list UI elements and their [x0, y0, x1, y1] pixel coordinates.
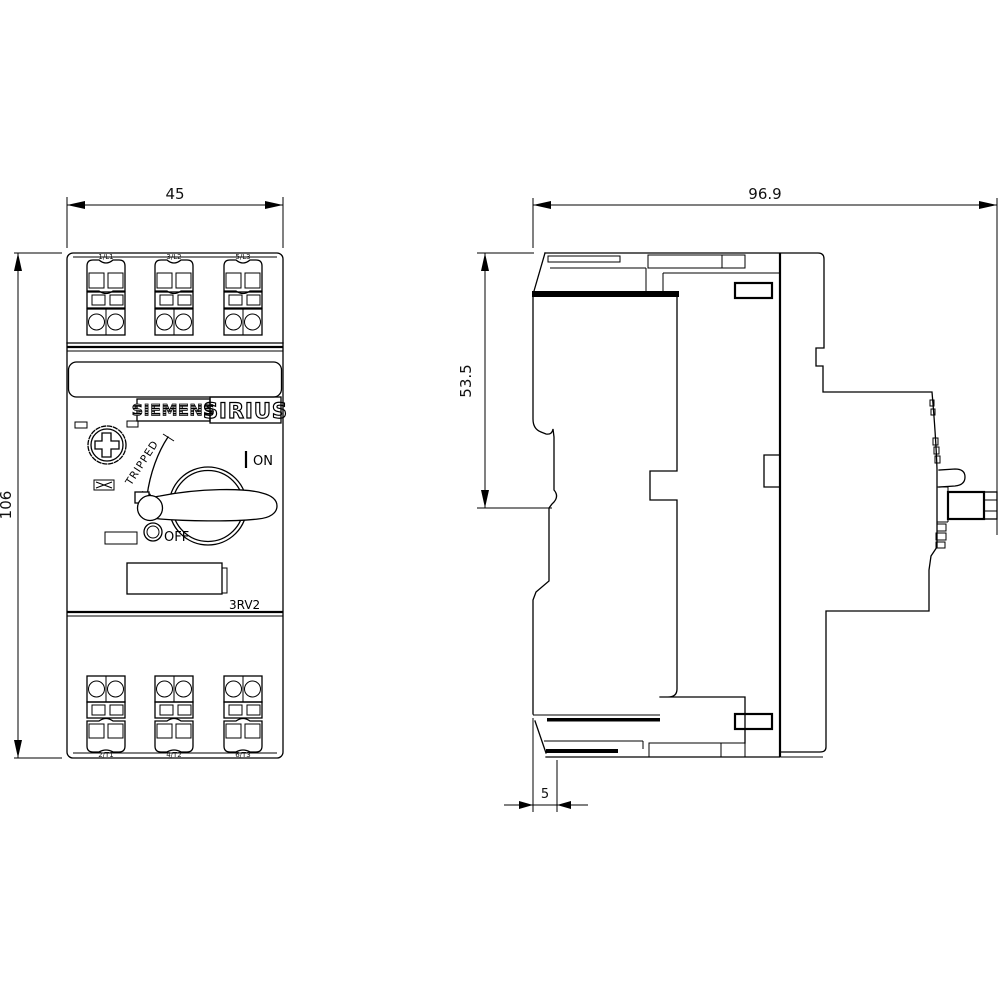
- front-view: 1/L1 3/L2 5/L3: [0, 185, 288, 759]
- panel-slot: [75, 422, 87, 428]
- front-height-dimension-label: 106: [0, 491, 15, 520]
- screw-terminal: [176, 681, 192, 697]
- adjustment-dial: [88, 426, 126, 464]
- vent-slot-bottom: [735, 714, 772, 729]
- off-marking: OFF: [144, 523, 189, 545]
- din-claw-profile: [533, 297, 557, 714]
- drawing-page: 1/L1 3/L2 5/L3: [0, 0, 1000, 1000]
- extension-lines: [533, 198, 997, 535]
- front-upper-divider: [67, 343, 283, 351]
- arrowhead: [519, 801, 533, 809]
- screw-terminal: [176, 314, 192, 330]
- arrowhead: [14, 253, 22, 271]
- side-depth-dimension: 96.9: [533, 185, 997, 535]
- screw-terminal: [89, 681, 105, 697]
- series-label: SIRIUS: [203, 399, 288, 423]
- screw-terminal: [108, 681, 124, 697]
- arrowhead: [481, 490, 489, 508]
- on-label: ON: [253, 454, 273, 469]
- side-knob-assembly: [930, 400, 997, 548]
- front-terminal-top-3: 5/L3: [224, 253, 262, 335]
- knob-end-cap: [984, 492, 997, 519]
- side-depth-dimension-label: 96.9: [748, 185, 781, 203]
- front-label-band: [69, 362, 282, 397]
- side-rail-offset-dimension: 5: [504, 718, 588, 812]
- side-bottom-details: [649, 714, 772, 757]
- divider-notch: [764, 455, 780, 487]
- panel-window: [105, 532, 137, 544]
- handle-lever: [145, 490, 277, 521]
- front-terminal-bottom-2: 4/T2: [155, 676, 193, 759]
- front-section-divider: [650, 297, 745, 743]
- terminal-label-6T3: 6/T3: [235, 751, 251, 759]
- model-label: 3RV2: [229, 598, 260, 612]
- terminal-label-2T1: 2/T1: [98, 751, 114, 759]
- arrowhead: [67, 201, 85, 209]
- screw-terminal: [226, 681, 242, 697]
- arrowhead: [557, 801, 571, 809]
- screw-terminal: [89, 314, 105, 330]
- screw-terminal: [226, 314, 242, 330]
- front-control-panel: TRIPPED ON: [75, 421, 277, 612]
- tripped-label: TRIPPED: [123, 438, 161, 488]
- mounting-plate-top: [532, 291, 679, 297]
- screw-terminal: [245, 681, 261, 697]
- terminal-label-5L3: 5/L3: [235, 253, 250, 261]
- mounting-plate-bottom: [547, 718, 660, 722]
- front-width-dimension: 45: [67, 185, 283, 248]
- knob-body: [948, 492, 984, 519]
- shaft-tab: [939, 469, 965, 487]
- handle-pivot: [138, 496, 163, 521]
- terminal-label-4T2: 4/T2: [166, 751, 182, 759]
- side-rail-offset-dimension-label: 5: [541, 787, 549, 802]
- lock-icon: [94, 480, 114, 490]
- rotary-handle: [135, 467, 277, 545]
- side-upper-depth-dimension-label: 53.5: [457, 364, 475, 397]
- phillips-cross-icon: [95, 433, 119, 457]
- on-marking: ON: [246, 451, 273, 469]
- terminal-label-1L1: 1/L1: [98, 253, 113, 261]
- side-interior-dividers: [650, 253, 780, 757]
- extension-lines: [14, 253, 62, 758]
- arrowhead: [533, 201, 551, 209]
- side-view: 96.9 53.5 5: [457, 185, 997, 812]
- front-terminal-top-1: 1/L1: [87, 253, 125, 335]
- arrowhead: [265, 201, 283, 209]
- arrowhead: [14, 740, 22, 758]
- vent-slot-top: [735, 283, 772, 298]
- front-terminal-top-2: 3/L2: [155, 253, 193, 335]
- side-main-outline: [545, 253, 937, 752]
- terminal-label-3L2: 3/L2: [166, 253, 181, 261]
- arrowhead: [979, 201, 997, 209]
- front-height-dimension: 106: [0, 253, 62, 758]
- branding-row: SIEMENS SIRIUS: [132, 397, 288, 423]
- front-terminal-bottom-3: 6/T3: [224, 676, 262, 759]
- arrowhead: [481, 253, 489, 271]
- front-width-dimension-label: 45: [165, 185, 184, 203]
- off-label: OFF: [164, 530, 189, 545]
- screw-terminal: [245, 314, 261, 330]
- din-rail-mount-profile: [532, 253, 679, 753]
- front-lower-divider: [67, 612, 283, 616]
- marking-label-strip: [222, 568, 227, 593]
- panel-slot: [127, 421, 138, 427]
- marking-label-box: [127, 563, 222, 594]
- screw-terminal: [157, 681, 173, 697]
- front-terminal-bottom-1: 2/T1: [87, 676, 125, 759]
- technical-drawing-canvas: 1/L1 3/L2 5/L3: [0, 0, 1000, 1000]
- screw-terminal: [157, 314, 173, 330]
- screw-terminal: [108, 314, 124, 330]
